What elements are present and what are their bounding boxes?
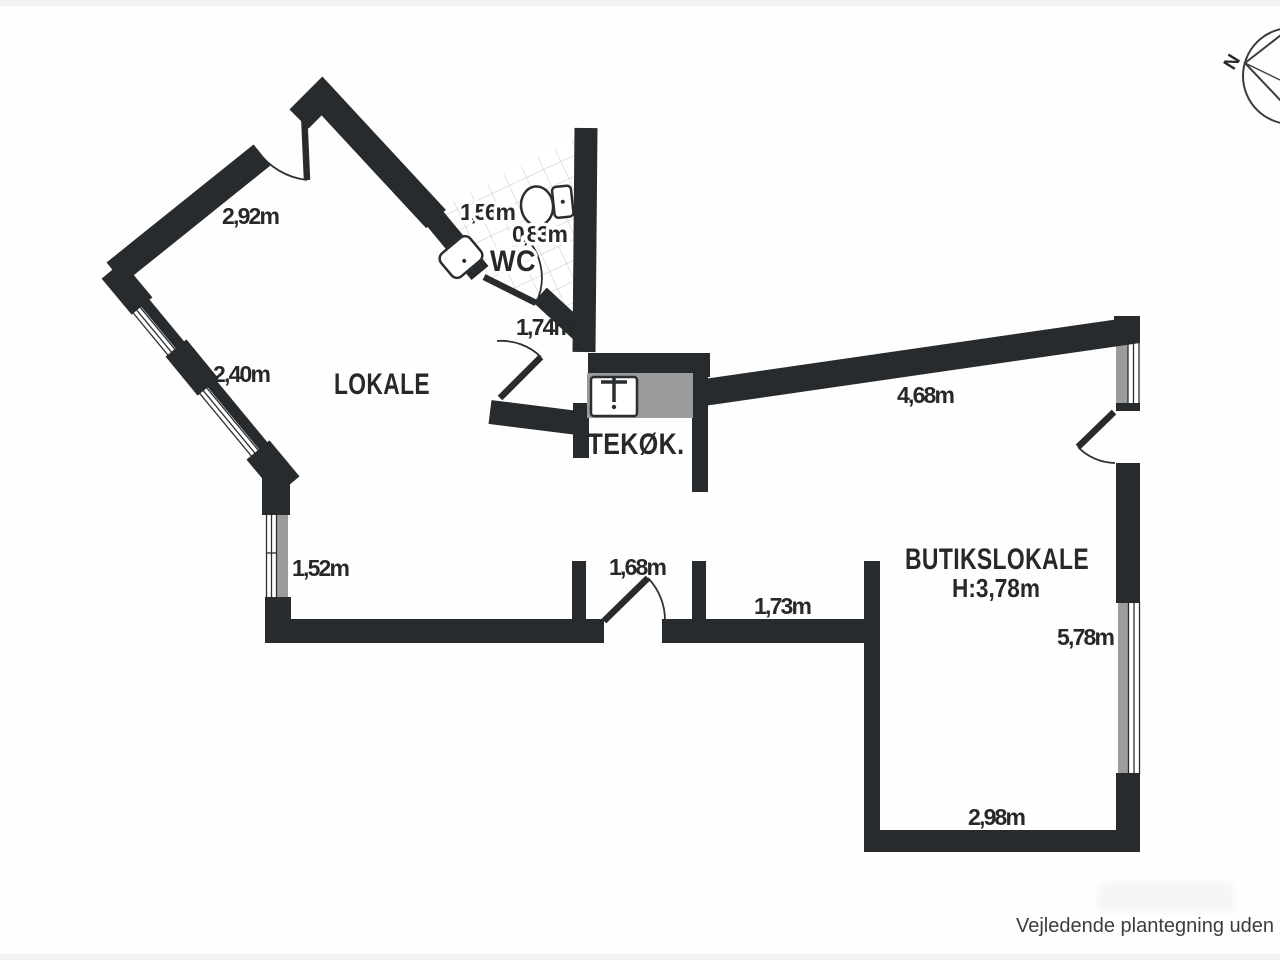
measure-passage: 1,73m <box>754 593 812 619</box>
measure-wc-width: 1,56m <box>460 199 516 225</box>
window-right-lower <box>1118 601 1140 775</box>
measure-hallway: 1,74m <box>516 314 574 340</box>
butikslokale-label: BUTIKSLOKALE <box>905 543 1089 576</box>
floorplan-page: { "plan": { "rooms": { "lokale": "LOKALE… <box>0 0 1280 960</box>
room-labels: LOKALE WC TEKØK. BUTIKSLOKALE H:3,78m <box>334 245 1089 603</box>
compass-north-label: N <box>1220 51 1245 74</box>
measure-left-window-lower: 1,52m <box>292 555 350 581</box>
disclaimer-text: Vejledende plantegning uden a <box>1016 915 1280 938</box>
floorplan-drawing: LOKALE WC TEKØK. BUTIKSLOKALE H:3,78m 2,… <box>0 0 1280 960</box>
hallway-door <box>497 341 541 398</box>
tekoek-label: TEKØK. <box>588 428 685 461</box>
compass-icon: N <box>1220 28 1280 124</box>
measure-lokale-door: 1,68m <box>609 554 667 580</box>
lokale-label: LOKALE <box>334 368 430 401</box>
wc-label: WC <box>490 245 536 278</box>
measurement-labels: 2,92m 2,40m 1,52m 1,56m 0,83m 1,74m 4,68… <box>213 199 1115 830</box>
measure-right-window: 5,78m <box>1057 624 1115 650</box>
measure-left-window-upper: 2,40m <box>213 361 271 387</box>
measure-bottom-wall: 2,98m <box>968 804 1026 830</box>
measure-top-left-wall: 2,92m <box>222 203 280 229</box>
measure-wc-depth: 0,83m <box>512 221 568 247</box>
watermark-logo <box>1098 882 1234 912</box>
lokale-door <box>604 578 665 621</box>
butikslokale-height-label: H:3,78m <box>952 573 1040 603</box>
window-right-upper <box>1116 341 1140 405</box>
kitchen-sink-icon <box>591 377 637 416</box>
measure-diagonal-wall: 4,68m <box>897 382 955 408</box>
butikslokale-door <box>1078 412 1115 463</box>
window-left-lower <box>266 506 288 601</box>
